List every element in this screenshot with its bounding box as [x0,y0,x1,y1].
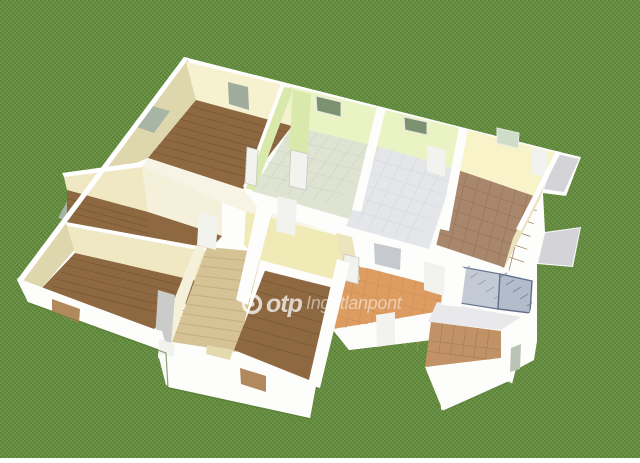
svg-text:Ingatlanpont: Ingatlanpont [306,293,403,313]
svg-text:otp: otp [266,290,303,318]
